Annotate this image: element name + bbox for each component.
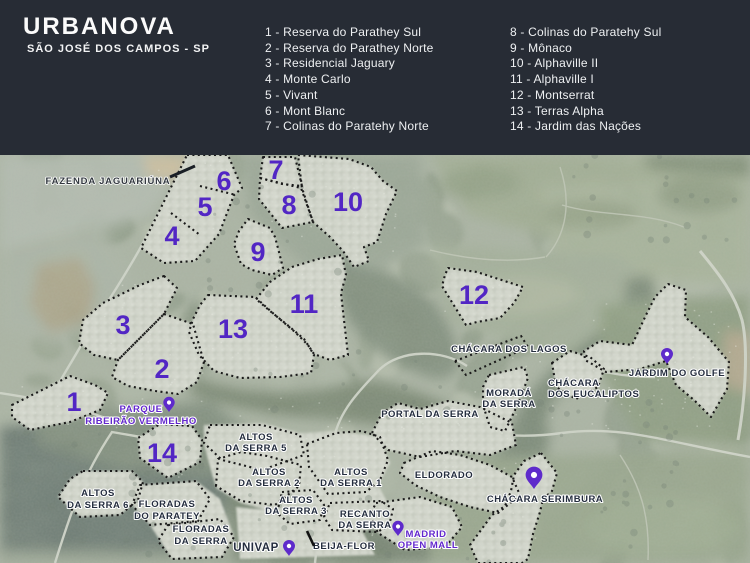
svg-text:ELDORADO: ELDORADO [415,470,473,481]
svg-text:6: 6 [216,166,231,196]
svg-text:CHÁCARA: CHÁCARA [548,378,600,389]
svg-text:12: 12 [459,280,489,310]
svg-text:8: 8 [281,190,296,220]
svg-text:9: 9 [250,237,265,267]
svg-text:ALTOS: ALTOS [252,467,286,478]
svg-text:4: 4 [164,221,179,251]
svg-text:DOS EUCALIPTOS: DOS EUCALIPTOS [548,389,639,400]
svg-text:DA SERRA 3: DA SERRA 3 [265,506,327,517]
svg-text:CHÁCARA DOS LAGOS: CHÁCARA DOS LAGOS [451,344,567,355]
svg-text:1: 1 [66,387,81,417]
svg-text:MORADÁ: MORADÁ [486,388,532,399]
svg-text:ALTOS: ALTOS [239,432,273,443]
svg-text:ALTOS: ALTOS [334,467,368,478]
svg-text:13: 13 [218,314,248,344]
svg-text:3: 3 [115,310,130,340]
svg-text:MADRID: MADRID [406,529,447,540]
svg-text:14: 14 [147,438,177,468]
svg-text:ALTOS: ALTOS [81,488,115,499]
svg-text:UNIVAP: UNIVAP [233,542,279,554]
svg-text:DO PARATEY: DO PARATEY [134,511,200,522]
svg-text:JARDIM DO GOLFE: JARDIM DO GOLFE [629,368,725,379]
svg-text:ALTOS: ALTOS [279,495,313,506]
svg-text:DA SERRA: DA SERRA [174,536,227,547]
svg-text:PARQUE: PARQUE [120,404,163,415]
svg-text:DA SERRA 5: DA SERRA 5 [225,443,287,454]
svg-text:DA SERRA 6: DA SERRA 6 [67,500,129,511]
svg-text:5: 5 [197,192,212,222]
svg-text:DA SERRA: DA SERRA [338,520,391,531]
svg-text:DA SERRA 1: DA SERRA 1 [320,478,382,489]
svg-text:PORTAL DA SERRA: PORTAL DA SERRA [381,409,479,420]
svg-text:BEIJA-FLOR: BEIJA-FLOR [313,541,375,552]
svg-text:CHÁCARA SERIMBURA: CHÁCARA SERIMBURA [487,494,603,505]
svg-text:RIBEIRÃO VERMELHO: RIBEIRÃO VERMELHO [85,416,196,427]
svg-text:RECANTO: RECANTO [340,509,390,520]
svg-text:DA SERRA: DA SERRA [482,399,535,410]
svg-text:11: 11 [290,289,319,319]
svg-text:FLORADAS: FLORADAS [173,524,230,535]
svg-text:OPEN MALL: OPEN MALL [398,540,458,551]
svg-text:2: 2 [154,354,169,384]
svg-text:DA SERRA 2: DA SERRA 2 [238,478,300,489]
svg-text:FAZENDA JAGUARIÚNA: FAZENDA JAGUARIÚNA [46,175,171,187]
svg-text:7: 7 [268,155,283,185]
svg-text:FLORADAS: FLORADAS [139,499,196,510]
svg-text:10: 10 [333,187,363,217]
